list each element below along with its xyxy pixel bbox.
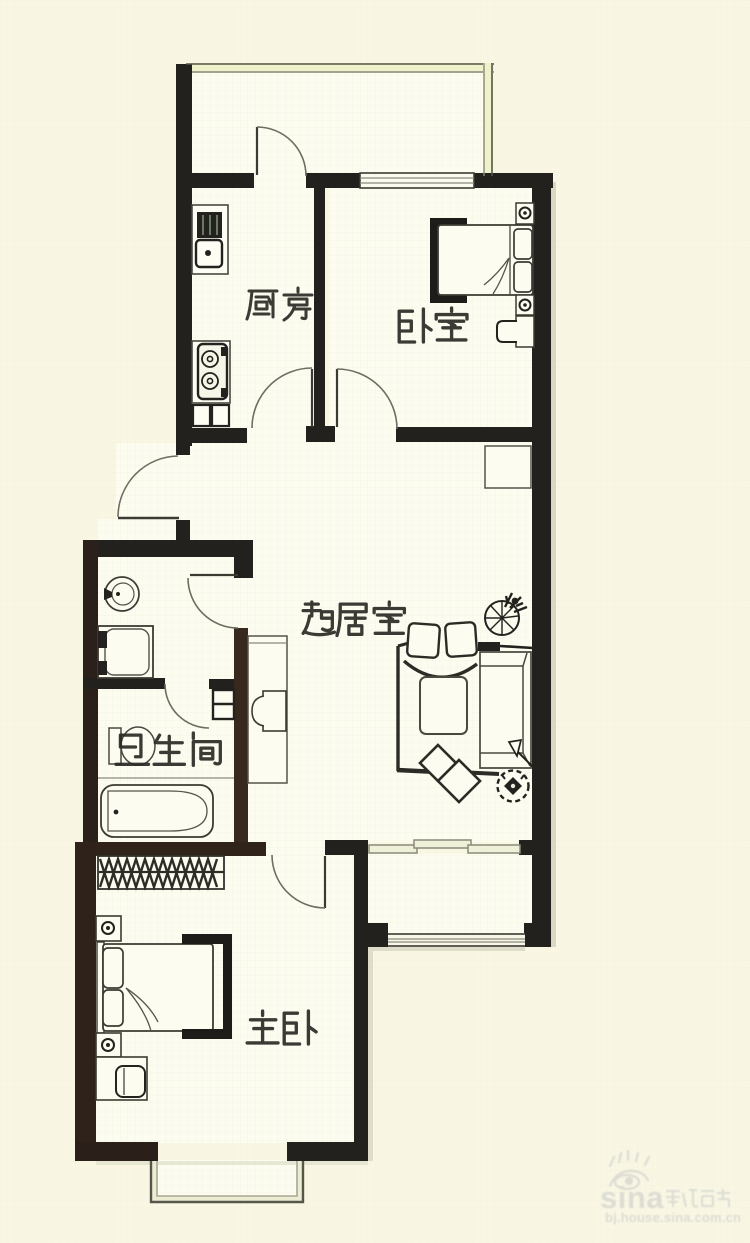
svg-text:bj.house.sina.com.cn: bj.house.sina.com.cn xyxy=(605,1210,741,1225)
